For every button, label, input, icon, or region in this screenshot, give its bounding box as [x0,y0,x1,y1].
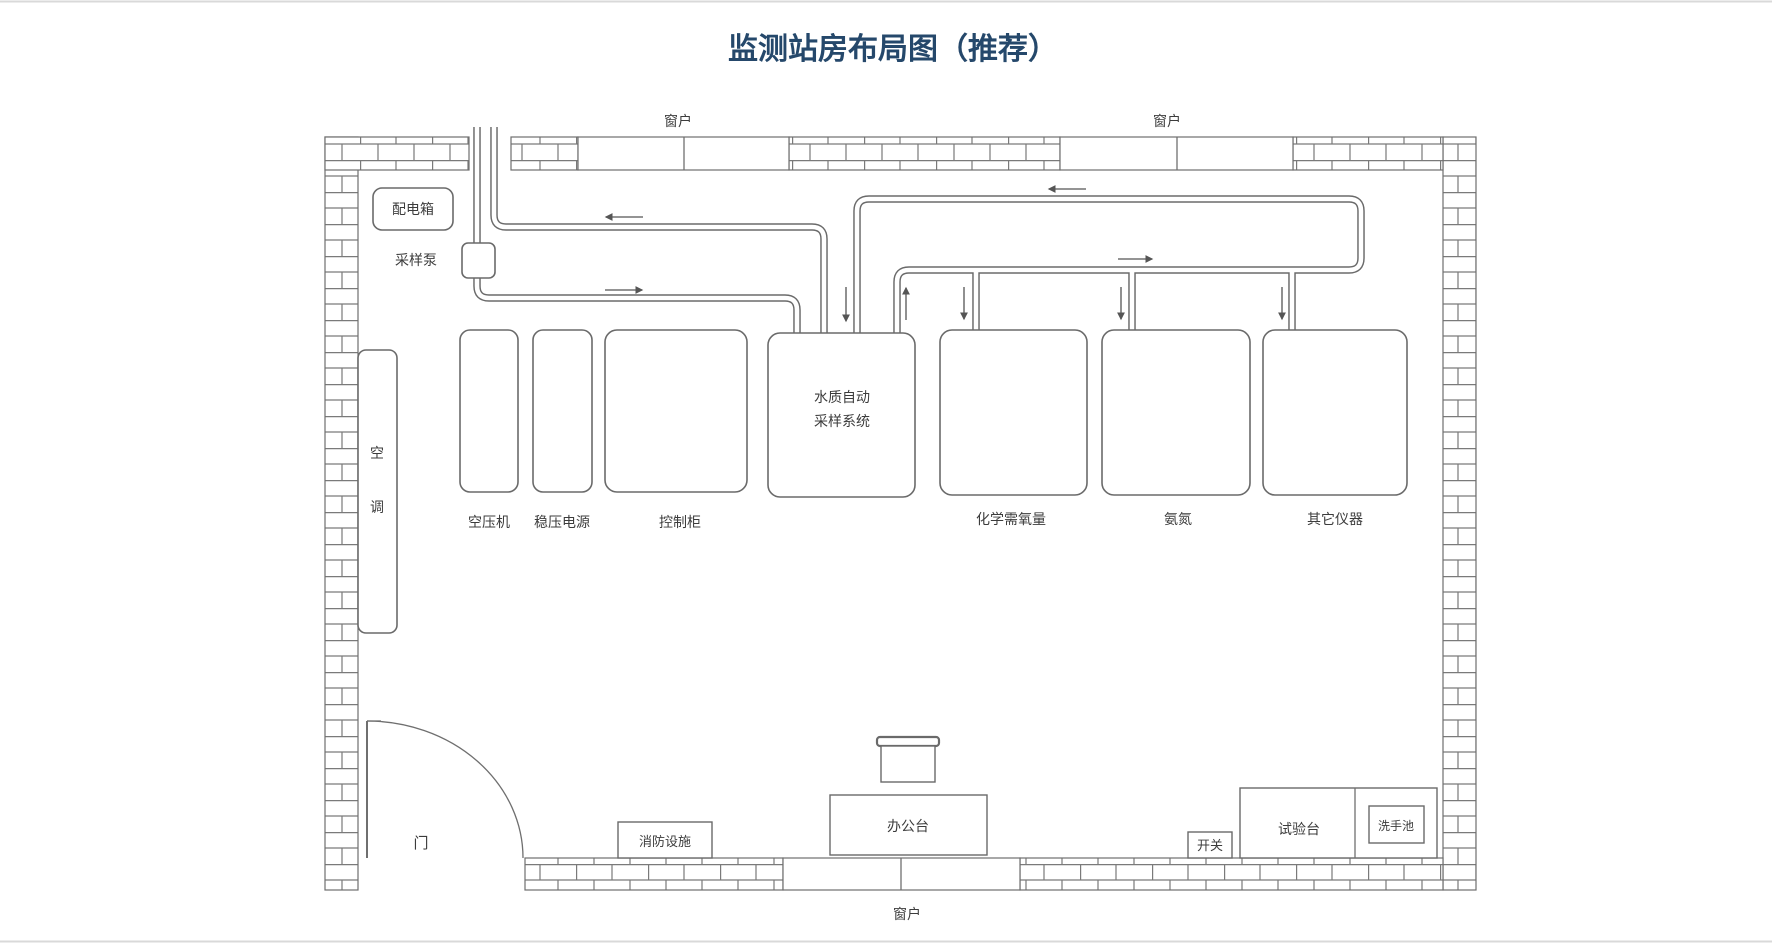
stabilized-power-label: 稳压电源 [534,515,590,531]
switch-label: 开关 [1197,839,1223,854]
distribution-box-label: 配电箱 [392,202,434,218]
floorplan-page: 监测站房布局图（推荐） [0,0,1772,943]
fire-equipment-label: 消防设施 [639,834,691,850]
wall-bottom-segment-1 [525,858,783,890]
wall-top-segment-2 [511,137,578,170]
test-bench-label: 试验台 [1278,822,1320,838]
office-desk-label: 办公台 [887,819,929,835]
other-instruments-box [1263,330,1407,495]
air-conditioner [358,350,397,633]
door-swing-arc [367,721,523,858]
water-sampler-label-line2: 采样系统 [814,414,870,430]
air-conditioner-label-char1: 空 [370,446,384,462]
wall-bottom-segment-2 [1020,858,1443,890]
air-compressor-box [460,330,518,492]
cod-analyzer-label: 化学需氧量 [976,512,1046,528]
window-top-right-label: 窗户 [1153,113,1181,130]
page-title: 监测站房布局图（推荐） [728,32,1058,67]
ammonia-analyzer-box [1102,330,1250,495]
office-chair-seat [881,746,935,782]
air-compressor-label: 空压机 [468,515,510,531]
sampling-pump [462,243,495,278]
window-top-left-label: 窗户 [664,113,692,130]
door-label: 门 [413,834,428,852]
control-cabinet-label: 控制柜 [659,515,701,531]
wall-left [325,137,358,890]
wall-right [1443,137,1476,890]
floorplan-svg: 监测站房布局图（推荐） [0,0,1772,943]
water-sampler-label-line1: 水质自动 [814,390,870,406]
sink-label: 洗手池 [1378,819,1414,833]
sampling-pump-label: 采样泵 [395,253,437,269]
wall-top-segment-3 [789,137,1060,170]
pipe-pump-to-sampler [477,278,797,334]
cod-analyzer-box [940,330,1087,495]
control-cabinet-box [605,330,747,492]
window-bottom-label: 窗户 [893,906,921,923]
ammonia-analyzer-label: 氨氮 [1164,512,1192,528]
other-instruments-label: 其它仪器 [1307,511,1363,528]
pipe-distribution-loop [857,199,1361,334]
wall-top-segment-1 [325,137,469,170]
air-conditioner-label-char2: 调 [370,500,384,516]
wall-top-segment-4 [1293,137,1443,170]
pipe-pump-to-sampler-fill [477,278,797,334]
office-chair-back [877,737,939,746]
stabilized-power-box [533,330,592,492]
